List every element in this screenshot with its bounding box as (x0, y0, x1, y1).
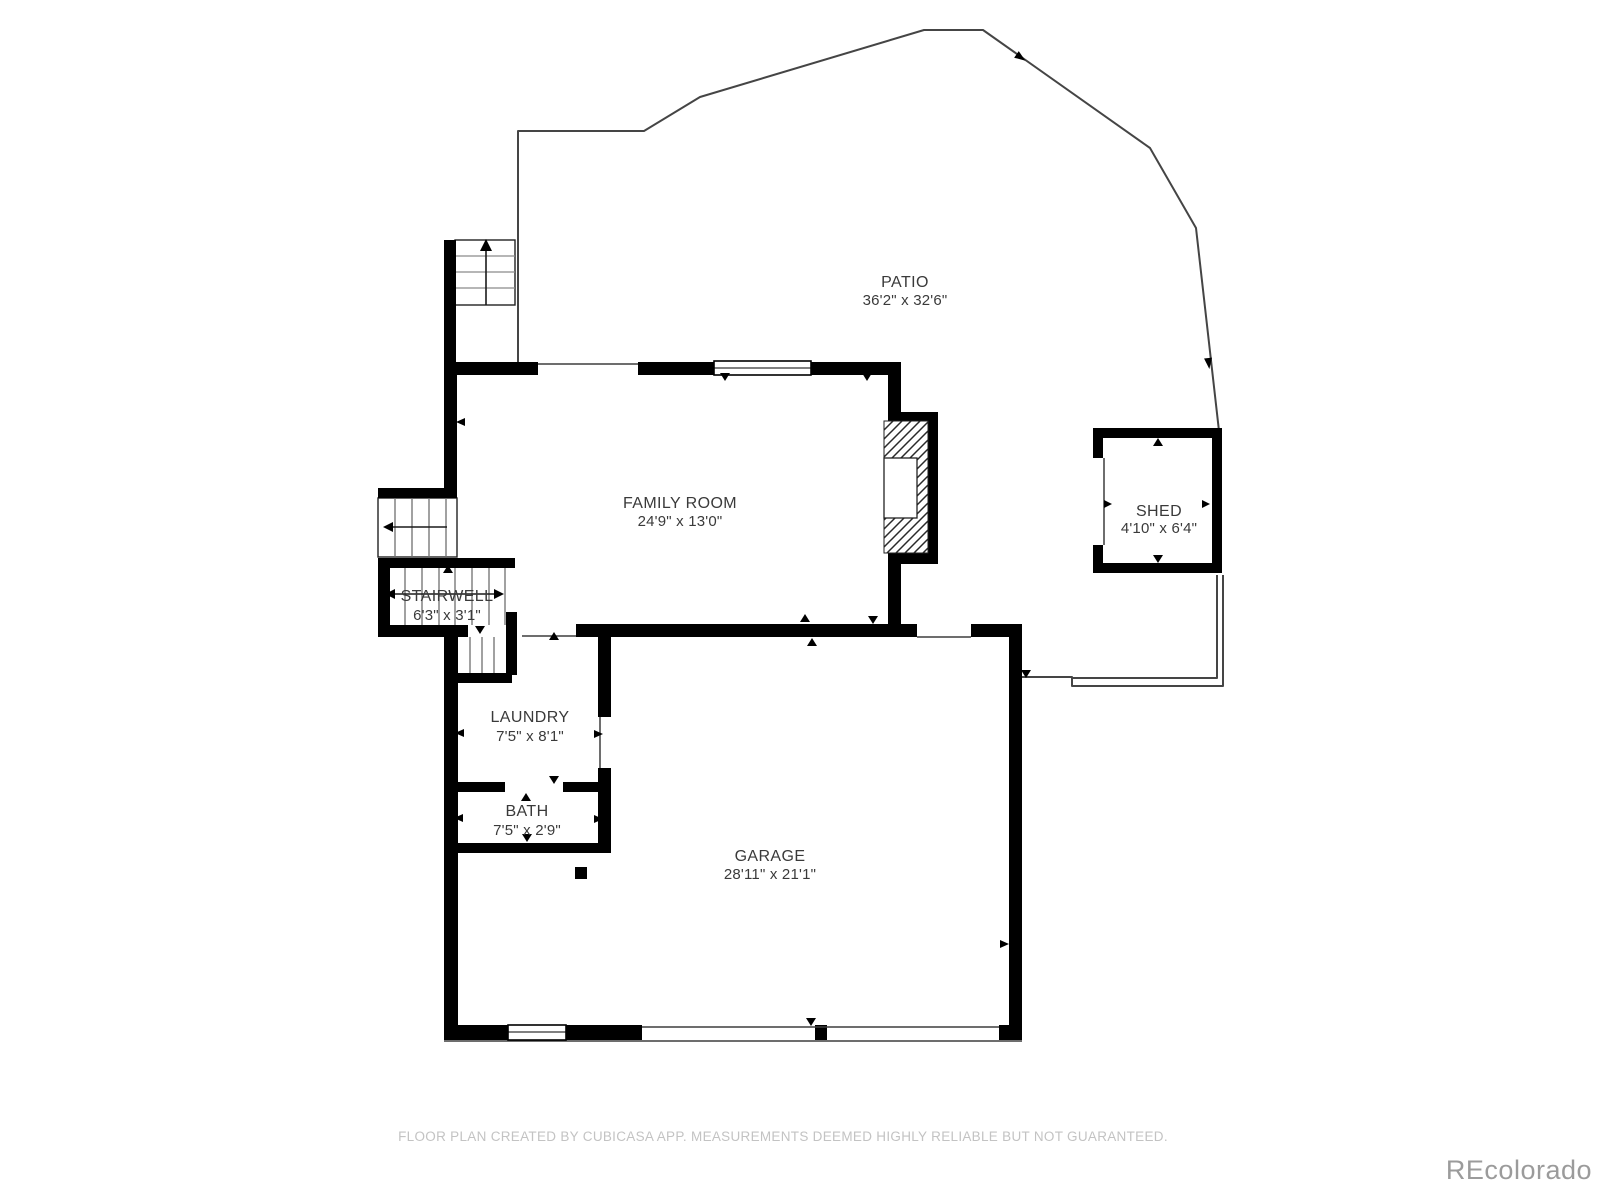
room-label-patio: PATIO (881, 274, 929, 291)
room-label-garage: GARAGE (735, 848, 806, 865)
room-label-stairwell: STAIRWELL (401, 588, 494, 605)
floor-plan-page: PATIO 36'2" x 32'6" FAMILY ROOM 24'9" x … (0, 0, 1600, 1200)
family-room-window (714, 361, 811, 375)
dim-arrow-right (494, 589, 504, 599)
stairs-down-tick (475, 626, 485, 634)
exterior-stairs (455, 239, 515, 305)
walls (378, 240, 1222, 1040)
room-dims-stairwell: 6'3" x 3'1" (413, 607, 481, 624)
wall-openings (444, 364, 1104, 1041)
room-dims-patio: 36'2" x 32'6" (863, 292, 948, 309)
room-label-shed: SHED (1136, 503, 1182, 520)
garage-post (575, 867, 587, 879)
windows (508, 361, 811, 1040)
patio-boundary (518, 30, 1223, 686)
garage-window (508, 1025, 566, 1040)
room-label-laundry: LAUNDRY (491, 709, 570, 726)
footer-disclaimer: FLOOR PLAN CREATED BY CUBICASA APP. MEAS… (398, 1129, 1168, 1144)
room-dims-garage: 28'11" x 21'1" (724, 866, 816, 883)
room-dims-bath: 7'5" x 2'9" (493, 822, 561, 839)
floor-plan-svg: PATIO 36'2" x 32'6" FAMILY ROOM 24'9" x … (0, 0, 1600, 1200)
firebox (884, 458, 917, 518)
room-label-family-room: FAMILY ROOM (623, 495, 737, 512)
fireplace (884, 412, 938, 564)
stairwell-stairs (378, 498, 505, 673)
room-dims-laundry: 7'5" x 8'1" (496, 728, 564, 745)
measurement-ticks (443, 373, 1210, 1026)
room-label-bath: BATH (505, 803, 548, 820)
watermark: REcolorado (1446, 1155, 1592, 1185)
room-dims-family-room: 24'9" x 13'0" (638, 513, 723, 530)
room-dims-shed: 4'10" x 6'4" (1121, 520, 1197, 537)
